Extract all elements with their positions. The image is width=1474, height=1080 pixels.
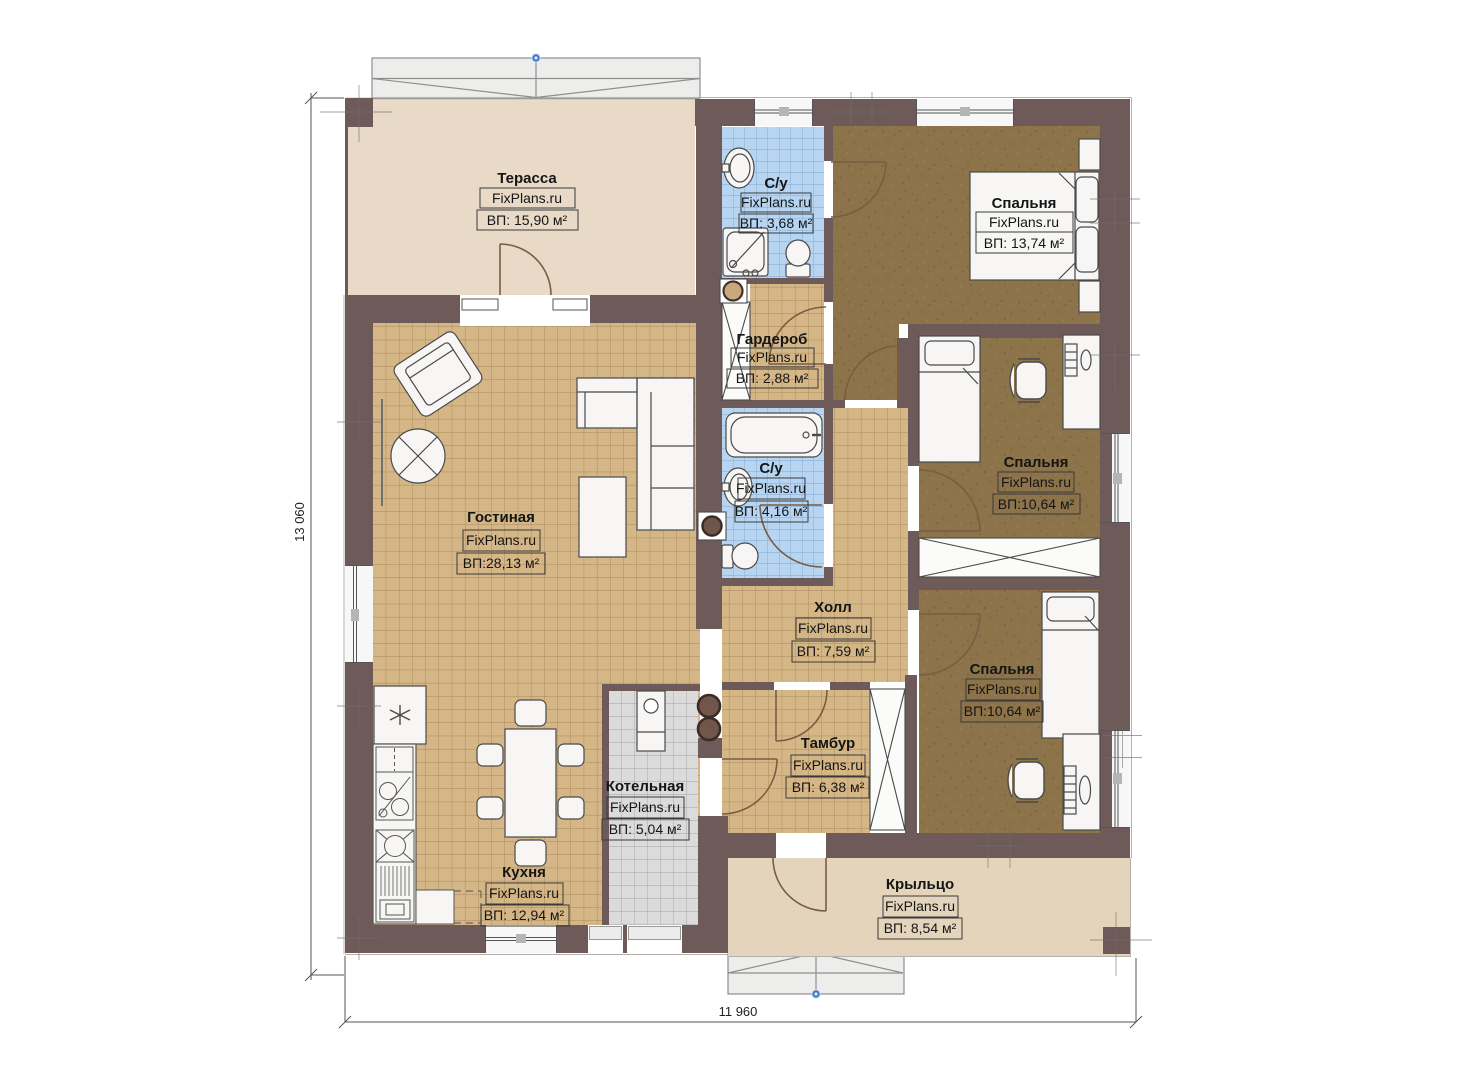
svg-text:ВП:10,64 м²: ВП:10,64 м² (964, 703, 1041, 719)
svg-text:ВП: 6,38 м²: ВП: 6,38 м² (792, 779, 865, 795)
svg-text:Спальня: Спальня (992, 195, 1057, 212)
svg-text:Спальня: Спальня (1004, 454, 1069, 471)
svg-text:FixPlans.ru: FixPlans.ru (798, 620, 868, 636)
svg-text:11 960: 11 960 (719, 1004, 758, 1019)
svg-text:ВП: 15,90 м²: ВП: 15,90 м² (487, 212, 568, 228)
svg-text:ВП: 12,94 м²: ВП: 12,94 м² (484, 907, 565, 923)
svg-text:ВП:28,13 м²: ВП:28,13 м² (463, 555, 540, 571)
svg-text:FixPlans.ru: FixPlans.ru (610, 799, 680, 815)
svg-text:Спальня: Спальня (970, 661, 1035, 678)
svg-text:ВП: 8,54 м²: ВП: 8,54 м² (884, 920, 957, 936)
svg-text:Терасса: Терасса (497, 170, 557, 187)
svg-text:Гостиная: Гостиная (467, 509, 535, 526)
svg-text:FixPlans.ru: FixPlans.ru (885, 898, 955, 914)
svg-text:Гардероб: Гардероб (737, 331, 808, 348)
svg-text:FixPlans.ru: FixPlans.ru (736, 480, 806, 496)
svg-text:FixPlans.ru: FixPlans.ru (793, 757, 863, 773)
svg-text:Тамбур: Тамбур (801, 735, 855, 752)
svg-text:Кухня: Кухня (502, 864, 546, 881)
svg-text:Крыльцо: Крыльцо (886, 876, 954, 893)
svg-text:FixPlans.ru: FixPlans.ru (967, 681, 1037, 697)
svg-text:С/у: С/у (764, 175, 788, 192)
svg-text:ВП: 2,88 м²: ВП: 2,88 м² (736, 370, 809, 386)
svg-text:ВП: 7,59 м²: ВП: 7,59 м² (797, 643, 870, 659)
svg-text:FixPlans.ru: FixPlans.ru (989, 214, 1059, 230)
svg-text:FixPlans.ru: FixPlans.ru (1001, 474, 1071, 490)
svg-text:ВП: 13,74 м²: ВП: 13,74 м² (984, 235, 1065, 251)
svg-text:Холл: Холл (814, 599, 852, 616)
svg-text:ВП: 5,04 м²: ВП: 5,04 м² (609, 821, 682, 837)
svg-text:FixPlans.ru: FixPlans.ru (741, 194, 811, 210)
svg-text:13 060: 13 060 (292, 502, 307, 542)
svg-text:FixPlans.ru: FixPlans.ru (492, 190, 562, 206)
svg-text:FixPlans.ru: FixPlans.ru (737, 349, 807, 365)
svg-text:С/у: С/у (759, 460, 783, 477)
svg-text:ВП: 4,16 м²: ВП: 4,16 м² (735, 503, 808, 519)
svg-text:Котельная: Котельная (606, 778, 685, 795)
svg-text:ВП:10,64 м²: ВП:10,64 м² (998, 496, 1075, 512)
svg-text:FixPlans.ru: FixPlans.ru (466, 532, 536, 548)
svg-text:FixPlans.ru: FixPlans.ru (489, 885, 559, 901)
svg-text:ВП: 3,68 м²: ВП: 3,68 м² (740, 215, 813, 231)
